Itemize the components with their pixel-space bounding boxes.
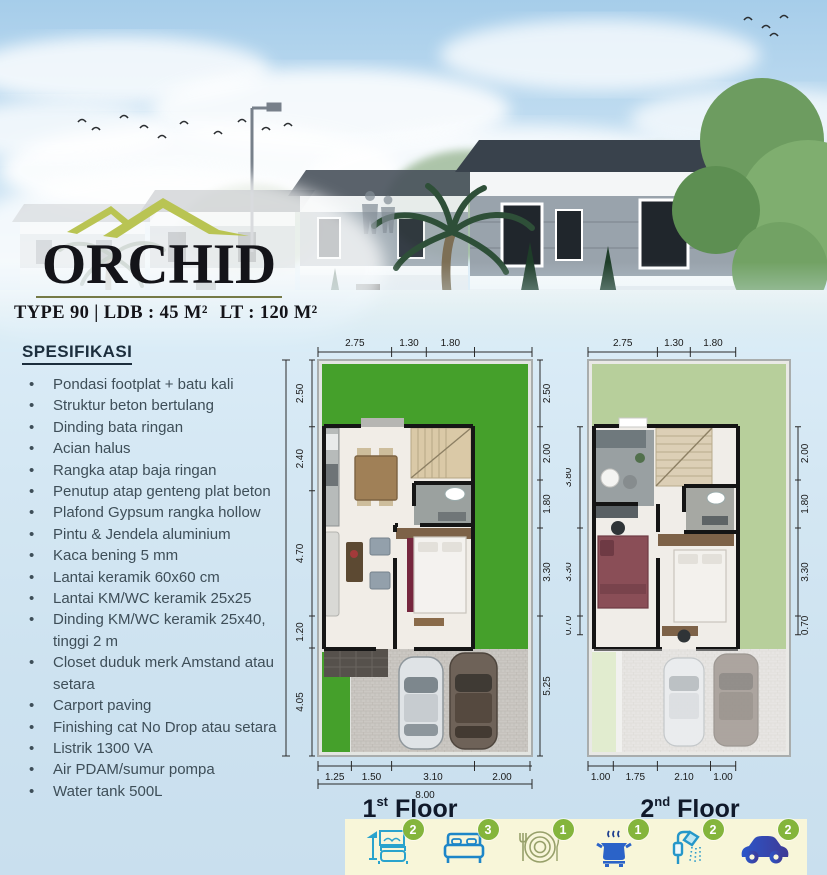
dim-label: 3.30	[566, 562, 574, 582]
amenity-count-badge: 3	[478, 819, 499, 840]
project-logo: ORCHID TYPE 90 | LDB : 45 M²LT : 120 M²	[14, 190, 304, 324]
amenity-carport: 2	[738, 825, 790, 869]
dim-label: 2.75	[613, 338, 633, 349]
side-lawn	[473, 426, 528, 649]
brochure-page: ORCHID TYPE 90 | LDB : 45 M²LT : 120 M² …	[0, 0, 827, 875]
specifications-heading: SPESIFIKASI	[22, 342, 132, 365]
spec-item: Listrik 1300 VA	[22, 738, 304, 759]
dim-label: 3.80	[566, 467, 574, 487]
staircase	[656, 428, 712, 486]
spec-item: Lantai keramik 60x60 cm	[22, 567, 304, 588]
family-area	[596, 430, 654, 506]
amenity-count-badge: 2	[778, 819, 799, 840]
amenity-count-badge: 2	[403, 819, 424, 840]
spec-item: Pondasi footplat + batu kali	[22, 374, 304, 395]
dim-label: 3.30	[800, 562, 811, 582]
kitchen-counter	[324, 428, 339, 526]
dim-label: 3.30	[542, 562, 553, 582]
amenity-count-badge: 1	[628, 819, 649, 840]
spec-item: Finishing cat No Drop atau setara	[22, 717, 304, 738]
car-brown	[450, 653, 497, 749]
dim-label: 1.80	[800, 494, 811, 514]
dim-label: 2.00	[542, 443, 553, 463]
dim-label: 0.70	[800, 615, 811, 635]
amenity-living-room: 2	[363, 825, 415, 869]
dim-label: 1.80	[441, 338, 461, 349]
dim-label: 0.70	[566, 615, 574, 635]
amenity-shower: 2	[663, 825, 715, 869]
dim-label: 2.10	[674, 772, 694, 783]
dim-label: 1.50	[362, 772, 382, 783]
amenity-count-badge: 2	[703, 819, 724, 840]
bathroom	[414, 483, 471, 525]
first-floor-plan-drawing: 2.75 1.30 1.80 2.50 2.40 4.70 1.20 4.05 …	[278, 336, 566, 800]
dim-label: 1.00	[713, 772, 733, 783]
spec-item: Carport paving	[22, 695, 304, 716]
dim-label: 1.30	[664, 338, 684, 349]
spec-item: Acian halus	[22, 438, 304, 459]
spec-item: Struktur beton bertulang	[22, 395, 304, 416]
entry-step	[361, 418, 404, 427]
dim-label: 2.75	[345, 338, 365, 349]
front-lawn	[322, 364, 528, 426]
title-rule	[36, 296, 282, 298]
subtitle-type: TYPE 90 | LDB : 45 M²	[14, 303, 208, 323]
dim-label: 5.25	[542, 676, 553, 696]
dim-label: 1.25	[325, 772, 345, 783]
specifications-list: Pondasi footplat + batu kali Struktur be…	[22, 374, 304, 802]
bedroom-furniture	[396, 528, 472, 626]
spec-item: Closet duduk merk Amstand atau setara	[22, 652, 304, 695]
amenity-kitchen: 1	[588, 825, 640, 869]
specifications-section: SPESIFIKASI Pondasi footplat + batu kali…	[22, 342, 304, 802]
project-title: ORCHID	[14, 236, 304, 294]
first-floor-plan: 2.75 1.30 1.80 2.50 2.40 4.70 1.20 4.05 …	[278, 336, 566, 805]
floor-ordinal: st	[376, 794, 388, 809]
spec-item: Pintu & Jendela aluminium	[22, 524, 304, 545]
balcony-step	[619, 418, 647, 427]
spec-item: Water tank 500L	[22, 781, 304, 802]
car-silver	[399, 657, 443, 749]
spec-item: Air PDAM/sumur pompa	[22, 759, 304, 780]
amenity-dining: 1	[513, 825, 565, 869]
dim-label: 3.10	[423, 772, 443, 783]
floor-ordinal: nd	[654, 794, 670, 809]
spec-item: Rangka atap baja ringan	[22, 460, 304, 481]
amenities-strip: 2 3 1	[345, 819, 807, 875]
spec-item: Kaca bening 5 mm	[22, 545, 304, 566]
ground-floor-fade	[592, 649, 786, 752]
dim-label: 2.00	[492, 772, 512, 783]
roof-garden-front	[592, 364, 786, 426]
spec-item: Lantai KM/WC keramik 25x25	[22, 588, 304, 609]
dim-label: 1.80	[542, 494, 553, 514]
spec-item: Plafond Gypsum rangka hollow	[22, 502, 304, 523]
dim-label: 1.75	[626, 772, 646, 783]
amenity-bedroom: 3	[438, 825, 490, 869]
staircase	[411, 428, 471, 478]
dining-table	[355, 448, 397, 506]
second-floor-plan-drawing: 2.75 1.30 1.80 3.80 3.30 0.70 2.00 1.80 …	[566, 336, 827, 800]
dim-label: 2.50	[542, 383, 553, 403]
spec-item: Dinding bata ringan	[22, 417, 304, 438]
spec-item: Penutup atap genteng plat beton	[22, 481, 304, 502]
bathroom	[686, 488, 734, 530]
roof-garden-side	[738, 426, 786, 649]
project-subtitle: TYPE 90 | LDB : 45 M²LT : 120 M²	[14, 303, 304, 324]
dim-label: 2.00	[800, 443, 811, 463]
second-floor-plan: 2.75 1.30 1.80 3.80 3.30 0.70 2.00 1.80 …	[566, 336, 827, 805]
dim-label: 1.00	[591, 772, 611, 783]
subtitle-lt: LT : 120 M²	[220, 303, 318, 323]
dim-label: 1.80	[703, 338, 723, 349]
amenity-count-badge: 1	[553, 819, 574, 840]
dim-label: 1.30	[399, 338, 419, 349]
spec-item: Dinding KM/WC keramik 25x40, tinggi 2 m	[22, 609, 304, 652]
